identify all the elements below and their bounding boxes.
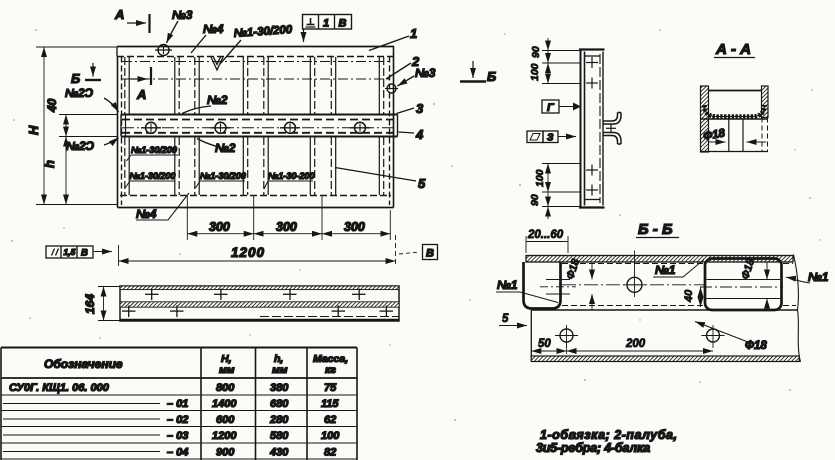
svg-text:600: 600: [216, 414, 235, 426]
svg-text:200: 200: [625, 338, 646, 350]
svg-text:– 03: – 03: [167, 430, 188, 442]
svg-text:164: 164: [83, 294, 97, 314]
svg-text:№1-30/200: №1-30/200: [233, 24, 293, 40]
svg-text:1: 1: [410, 26, 417, 41]
svg-text:№1: №1: [808, 270, 829, 284]
svg-text:Н: Н: [26, 125, 41, 135]
svg-text:№2: №2: [207, 93, 228, 107]
svg-text:З: З: [547, 133, 554, 144]
svg-text:– 01: – 01: [167, 398, 188, 410]
svg-text:3: 3: [416, 101, 424, 116]
svg-text:300: 300: [276, 220, 297, 234]
svg-text:– 04: – 04: [167, 447, 188, 459]
svg-text:580: 580: [270, 430, 289, 442]
svg-text:В: В: [426, 248, 434, 260]
svg-text:СУ0Г. КЩ1. 06. 000: СУ0Г. КЩ1. 06. 000: [9, 382, 110, 394]
svg-text:Ф18: Ф18: [745, 340, 767, 352]
svg-text:– 02: – 02: [167, 414, 188, 426]
svg-text:1200: 1200: [212, 430, 237, 442]
svg-text:№2Ɔ: №2Ɔ: [65, 88, 94, 100]
svg-text:№1: №1: [655, 263, 676, 277]
svg-text:800: 800: [216, 382, 235, 394]
svg-text:А: А: [114, 7, 124, 22]
svg-text:1,5: 1,5: [64, 247, 76, 257]
svg-text:№1-30/200: №1-30/200: [130, 171, 176, 181]
svg-text:115: 115: [321, 398, 339, 410]
svg-text:Б: Б: [71, 71, 80, 86]
svg-text:90: 90: [530, 46, 542, 58]
svg-text:А: А: [136, 87, 146, 102]
svg-text:900: 900: [216, 447, 235, 459]
svg-text:82: 82: [324, 447, 336, 459]
svg-text:В: В: [81, 248, 88, 259]
svg-text:Обозначение: Обозначение: [44, 357, 123, 371]
svg-text:В: В: [339, 18, 347, 30]
svg-text:100: 100: [321, 430, 340, 442]
svg-text:1-обвязка; 2-палуба,: 1-обвязка; 2-палуба,: [540, 428, 677, 442]
svg-text:мм: мм: [272, 364, 288, 376]
svg-text:1: 1: [323, 18, 329, 30]
svg-text:5: 5: [418, 176, 426, 191]
svg-text:4: 4: [415, 127, 424, 142]
svg-text:№3: №3: [415, 66, 436, 80]
svg-text:40: 40: [683, 289, 695, 303]
svg-text:А - А: А - А: [715, 41, 751, 58]
svg-text:Б: Б: [487, 69, 496, 84]
svg-text:№2: №2: [215, 141, 236, 155]
svg-text:№4: №4: [136, 207, 157, 221]
svg-text:Г: Г: [547, 102, 555, 114]
svg-text:№2Ɔ: №2Ɔ: [66, 141, 95, 153]
svg-text:Ф18: Ф18: [702, 127, 726, 143]
svg-text:100: 100: [529, 63, 541, 81]
svg-text:100: 100: [534, 169, 546, 187]
svg-text:62: 62: [324, 414, 336, 426]
svg-text:430: 430: [269, 447, 289, 459]
svg-text:5: 5: [502, 313, 509, 325]
svg-text:№1-30/200: №1-30/200: [131, 145, 177, 155]
svg-text:h: h: [42, 160, 57, 168]
svg-text:300: 300: [344, 220, 365, 234]
svg-text:№1: №1: [497, 278, 518, 292]
svg-text:40: 40: [45, 98, 59, 113]
svg-text:3и5-ребра; 4-балка: 3и5-ребра; 4-балка: [536, 441, 650, 455]
svg-text:680: 680: [270, 398, 289, 410]
svg-text:№1-30/200: №1-30/200: [200, 171, 246, 181]
svg-text:№3: №3: [172, 8, 193, 22]
svg-text:Б - Б: Б - Б: [638, 221, 673, 238]
svg-text:300: 300: [209, 220, 230, 234]
svg-text:75: 75: [324, 382, 337, 394]
svg-text:50: 50: [538, 338, 551, 350]
svg-text:20...60: 20...60: [527, 229, 564, 241]
svg-text:380: 380: [270, 382, 289, 394]
svg-text:№1-30-200: №1-30-200: [268, 171, 314, 181]
svg-text:1400: 1400: [212, 398, 237, 410]
svg-text:№4: №4: [203, 22, 224, 36]
svg-text:90: 90: [529, 194, 541, 206]
svg-text:кг: кг: [325, 364, 336, 376]
svg-text:280: 280: [269, 414, 289, 426]
svg-text:мм: мм: [219, 364, 235, 376]
svg-text:1200: 1200: [231, 245, 265, 260]
